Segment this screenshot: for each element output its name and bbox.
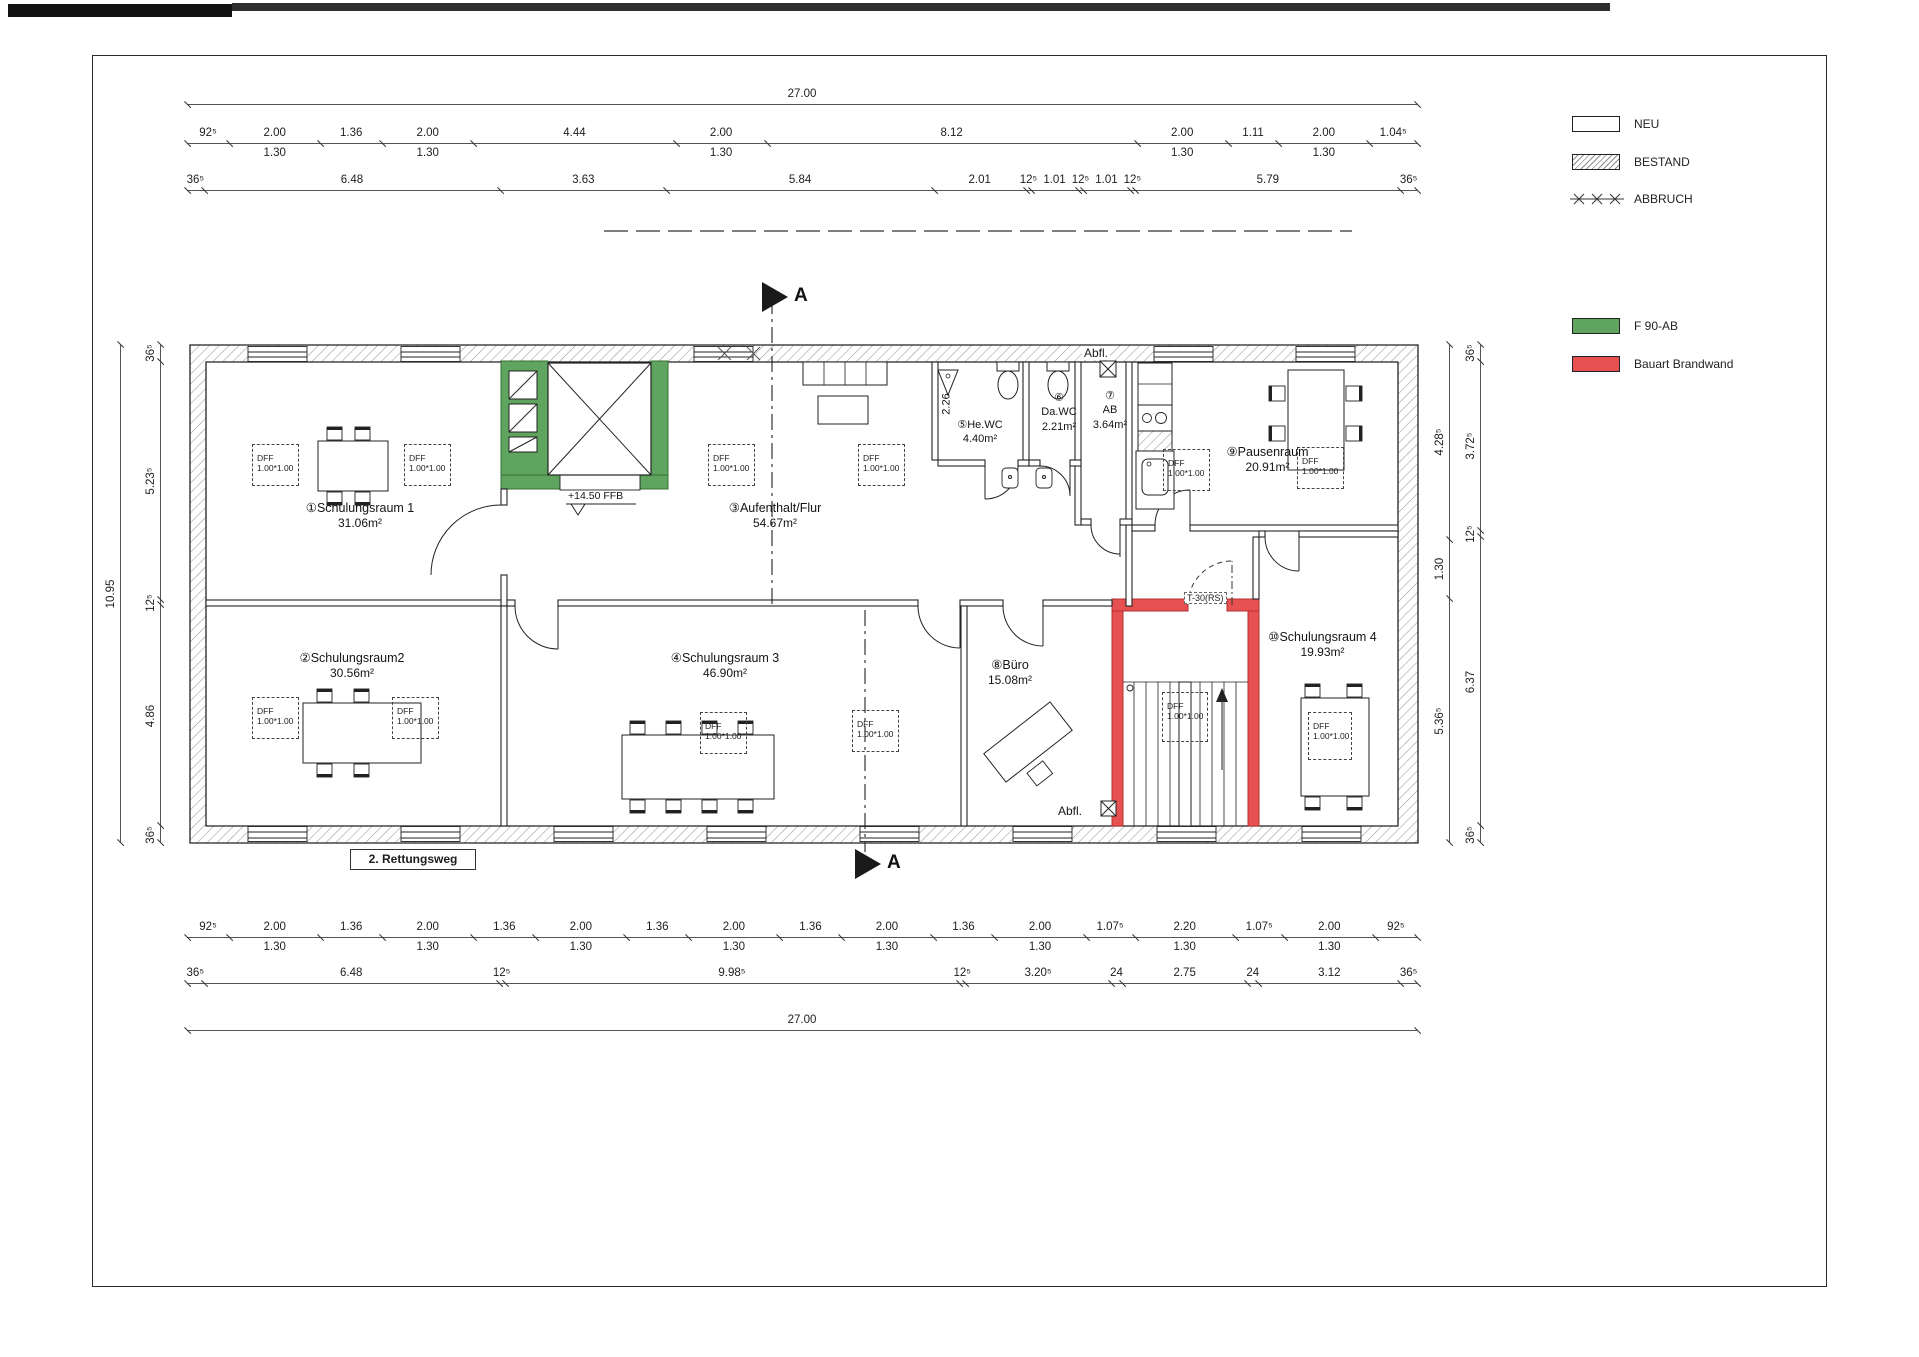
dim-label: 1.04⁵ [1380, 127, 1407, 139]
rettungsweg-label: 2. Rettungsweg [350, 849, 476, 870]
dim-label: 12⁵ [1020, 174, 1038, 186]
room-area: 2.21m² [1030, 420, 1088, 434]
legend-swatch-neu [1572, 116, 1620, 132]
outer-walls-bestand [190, 345, 1418, 843]
dim-chain-overall-left: 10.95 [120, 345, 122, 843]
dim-label: 1.36 [340, 127, 362, 139]
room-label-aufenthalt-flur: ③Aufenthalt/Flur 54.67m² [690, 500, 860, 532]
dim-label: 12⁵ [1465, 525, 1477, 543]
dim-label: 92⁵ [199, 921, 217, 933]
dim-label: 2.00 [723, 921, 745, 933]
dim-label: 6.48 [340, 967, 362, 979]
dim-label: 1.36 [493, 921, 515, 933]
dim-label: 36⁵ [1465, 826, 1477, 844]
dim-label: 2.00 [710, 127, 732, 139]
dim-chain-top-row1: 92⁵2.001.301.362.001.304.442.001.308.122… [187, 143, 1417, 145]
dim-label: 36⁵ [145, 345, 157, 363]
dim-label: 12⁵ [953, 967, 971, 979]
dim-chain-top-row2: 36⁵6.483.635.842.0112⁵1.0112⁵1.0112⁵5.79… [187, 190, 1417, 192]
dim-label: 5.84 [789, 174, 811, 186]
legend-label-brandwand: Bauart Brandwand [1634, 357, 1733, 371]
section-label-top: A [794, 285, 808, 307]
legend-swatch-abbruch [1570, 192, 1624, 206]
dim-line [187, 143, 1417, 144]
dim-label: 36⁵ [1400, 967, 1418, 979]
dim-label: 2.00 [263, 921, 285, 933]
dim-chain-overall-bottom: 27.00 [187, 1030, 1417, 1032]
dff-box: DFF1.00*1.00 [1308, 712, 1352, 760]
furniture [303, 362, 1369, 813]
dff-box: DFF1.00*1.00 [1297, 447, 1344, 489]
dim-line [1449, 345, 1450, 843]
dim-sublabel: 1.30 [723, 941, 745, 953]
dim-label: 24 [1110, 967, 1123, 979]
room-area: 4.40m² [930, 432, 1030, 446]
stair-up-arrow [1216, 688, 1228, 702]
dim-chain-bottom-row1: 92⁵2.001.301.362.001.301.362.001.301.362… [187, 937, 1417, 939]
dim-label: 36⁵ [1465, 345, 1477, 363]
section-marker-top [762, 282, 788, 312]
dim-label: 2.00 [876, 921, 898, 933]
dim-sublabel: 1.30 [1313, 147, 1335, 159]
ffb-level-label: +14.50 FFB [568, 490, 623, 502]
dim-label: 3.20⁵ [1025, 967, 1052, 979]
dff-box: DFF1.00*1.00 [1162, 692, 1208, 742]
section-marker-bottom [855, 849, 881, 879]
room-title: ④Schulungsraum 3 [640, 650, 810, 666]
dim-label: 36⁵ [187, 967, 205, 979]
dim-line [120, 345, 121, 843]
dim-sublabel: 1.30 [1173, 941, 1195, 953]
room-label-schulungsraum2: ②Schulungsraum2 30.56m² [272, 650, 432, 682]
dim-chain-right-outer: 36⁵3.72⁵12⁵6.3736⁵ [1480, 345, 1482, 843]
dim-label: 3.63 [572, 174, 594, 186]
dim-label: 4.44 [563, 127, 585, 139]
dim-line [1480, 345, 1481, 843]
dim-sublabel: 1.30 [263, 147, 285, 159]
room-title: AB [1084, 403, 1136, 417]
dim-sublabel: 1.30 [263, 941, 285, 953]
dim-label: 2.00 [1029, 921, 1051, 933]
dff-box: DFF1.00*1.00 [700, 712, 747, 754]
dff-box: DFF1.00*1.00 [404, 444, 451, 486]
room-label-da-wc: ⑥ Da.WC 2.21m² [1030, 391, 1088, 434]
room-label-schulungsraum3: ④Schulungsraum 3 46.90m² [640, 650, 810, 682]
dim-label: 27.00 [788, 1014, 817, 1026]
dim-label: 9.98⁵ [718, 967, 745, 979]
dim-label: 1.07⁵ [1096, 921, 1123, 933]
dim-label: 2.00 [417, 127, 439, 139]
legend-label-f90: F 90-AB [1634, 319, 1678, 333]
room-label-he-wc: ⑤He.WC 4.40m² [930, 418, 1030, 447]
dim-label: 1.11 [1242, 127, 1264, 139]
dim-label: 10.95 [105, 580, 117, 609]
dim-label: 1.01 [1095, 174, 1117, 186]
dim-label: 6.37 [1465, 670, 1477, 692]
dim-label: 5.36⁵ [1434, 707, 1446, 734]
room-title: ②Schulungsraum2 [272, 650, 432, 666]
ffb-level-marker [566, 504, 636, 515]
dim-label: 12⁵ [493, 967, 511, 979]
room-number: ⑦ [1084, 389, 1136, 403]
dim-label: 24 [1246, 967, 1259, 979]
dim-label: 5.23⁵ [145, 467, 157, 494]
dim-sublabel: 1.30 [876, 941, 898, 953]
room-area: 19.93m² [1260, 645, 1385, 661]
legend-swatch-bestand [1572, 154, 1620, 170]
dim-sublabel: 1.30 [417, 941, 439, 953]
dim-label: 2.00 [417, 921, 439, 933]
floor-plan-sheet: 27.00 92⁵2.001.301.362.001.304.442.001.3… [0, 0, 1919, 1357]
legend-swatch-f90 [1572, 318, 1620, 334]
dim-label: 4.86 [145, 705, 157, 727]
dim-label: 2.20 [1173, 921, 1195, 933]
dff-box: DFF1.00*1.00 [1163, 449, 1210, 491]
dim-label: 2.00 [1318, 921, 1340, 933]
dff-box: DFF1.00*1.00 [858, 444, 905, 486]
room-title: ⑩Schulungsraum 4 [1260, 629, 1385, 645]
dim-label: 1.30 [1434, 558, 1446, 580]
dim-label: 2.00 [1313, 127, 1335, 139]
dim-label: 2.00 [263, 127, 285, 139]
dim-label: 27.00 [788, 88, 817, 100]
dim-sublabel: 1.30 [570, 941, 592, 953]
abfl-label-top: Abfl. [1082, 346, 1110, 360]
dff-box: DFF1.00*1.00 [708, 444, 755, 486]
legend-label-neu: NEU [1634, 117, 1659, 131]
room-title: Da.WC [1030, 405, 1088, 419]
dim-line [187, 190, 1417, 191]
dim-label: 12⁵ [145, 594, 157, 612]
dim-label: 12⁵ [1072, 174, 1090, 186]
abfl-label-bottom: Abfl. [1058, 804, 1082, 818]
legend-swatch-brandwand [1572, 356, 1620, 372]
dim-chain-right-inner: 4.28⁵1.305.36⁵ [1449, 345, 1451, 843]
dim-label: 36⁵ [1400, 174, 1418, 186]
dim-label: 4.28⁵ [1434, 429, 1446, 456]
dim-sublabel: 1.30 [417, 147, 439, 159]
dim-label: 1.36 [646, 921, 668, 933]
dim-label: 2.00 [570, 921, 592, 933]
dim-chain-overall-top: 27.00 [187, 104, 1417, 106]
dim-label: 36⁵ [145, 826, 157, 844]
dim-label: 2.01 [968, 174, 990, 186]
room-title: ③Aufenthalt/Flur [690, 500, 860, 516]
dim-label: 36⁵ [187, 174, 205, 186]
dff-box: DFF1.00*1.00 [392, 697, 439, 739]
dim-sublabel: 1.30 [1029, 941, 1051, 953]
dim-label: 92⁵ [1387, 921, 1405, 933]
shaft-vents [509, 371, 537, 452]
dim-line [187, 104, 1417, 105]
room-title: ①Schulungsraum 1 [280, 500, 440, 516]
room-area: 46.90m² [640, 666, 810, 682]
dim-label: 6.48 [341, 174, 363, 186]
room-area: 15.08m² [955, 673, 1065, 689]
dim-label: 1.36 [799, 921, 821, 933]
room-label-schulungsraum4: ⑩Schulungsraum 4 19.93m² [1260, 629, 1385, 661]
abfl-symbol-bottom [1101, 801, 1116, 816]
dim-sublabel: 1.30 [1171, 147, 1193, 159]
dim-chain-left: 36⁵5.23⁵12⁵4.8636⁵ [160, 345, 162, 843]
dim-line [160, 345, 161, 843]
dim-label: 3.12 [1318, 967, 1340, 979]
room-label-schulungsraum1: ①Schulungsraum 1 31.06m² [280, 500, 440, 532]
wc-dim-label: 2.26 [941, 393, 953, 414]
desk [984, 702, 1086, 799]
section-label-bottom: A [887, 852, 901, 874]
dim-label: 2.75 [1173, 967, 1195, 979]
dim-sublabel: 1.30 [710, 147, 732, 159]
dim-label: 1.36 [340, 921, 362, 933]
dim-line [187, 1030, 1417, 1031]
room-area: 54.67m² [690, 516, 860, 532]
dim-label: 2.00 [1171, 127, 1193, 139]
elevator-door [560, 474, 640, 490]
dff-box: DFF1.00*1.00 [852, 710, 899, 752]
dim-label: 1.36 [952, 921, 974, 933]
abfl-symbol-top [1100, 361, 1116, 377]
dim-label: 3.72⁵ [1465, 433, 1477, 460]
dim-sublabel: 1.30 [1318, 941, 1340, 953]
dim-line [187, 983, 1417, 984]
room-title: ⑤He.WC [930, 418, 1030, 432]
dff-box: DFF1.00*1.00 [252, 697, 299, 739]
legend-label-abbruch: ABBRUCH [1634, 192, 1693, 206]
dim-label: 8.12 [940, 127, 962, 139]
dim-label: 1.07⁵ [1246, 921, 1273, 933]
room-title: ⑧Büro [955, 657, 1065, 673]
room-label-ab: ⑦ AB 3.64m² [1084, 389, 1136, 432]
dff-box: DFF1.00*1.00 [252, 444, 299, 486]
room-area: 3.64m² [1084, 418, 1136, 432]
dim-label: 92⁵ [199, 127, 217, 139]
legend-label-bestand: BESTAND [1634, 155, 1690, 169]
dim-chain-bottom-row2: 36⁵6.4812⁵9.98⁵12⁵3.20⁵242.75243.1236⁵ [187, 983, 1417, 985]
room-label-buero: ⑧Büro 15.08m² [955, 657, 1065, 689]
room-number: ⑥ [1030, 391, 1088, 405]
room-area: 31.06m² [280, 516, 440, 532]
elevator-shaft [548, 363, 651, 475]
t30-door-label: T-30(RS) [1184, 592, 1227, 604]
dim-label: 1.01 [1043, 174, 1065, 186]
room-area: 30.56m² [272, 666, 432, 682]
dim-label: 12⁵ [1124, 174, 1142, 186]
dim-line [187, 937, 1417, 938]
dim-label: 5.79 [1257, 174, 1279, 186]
